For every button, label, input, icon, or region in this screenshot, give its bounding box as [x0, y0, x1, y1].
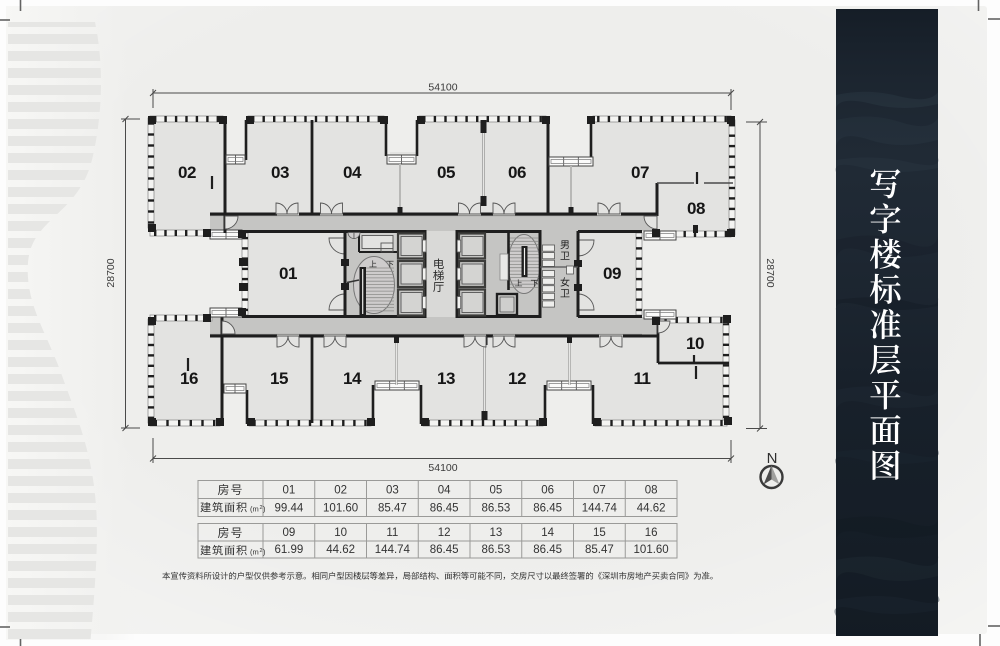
- svg-text:N: N: [767, 450, 778, 467]
- svg-text:14: 14: [541, 527, 554, 539]
- svg-text:86.53: 86.53: [481, 503, 510, 515]
- svg-text:10: 10: [334, 527, 347, 539]
- svg-text:101.60: 101.60: [634, 544, 669, 556]
- svg-text:04: 04: [343, 163, 362, 182]
- svg-text:44.62: 44.62: [326, 544, 355, 556]
- svg-text:01: 01: [282, 485, 295, 497]
- svg-text:06: 06: [541, 485, 554, 497]
- svg-text:09: 09: [282, 527, 295, 539]
- svg-text:05: 05: [489, 485, 502, 497]
- svg-text:(m: (m: [250, 548, 259, 557]
- svg-text:86.45: 86.45: [533, 503, 562, 515]
- svg-text:86.45: 86.45: [533, 544, 562, 556]
- svg-text:07: 07: [593, 485, 606, 497]
- svg-text:08: 08: [687, 199, 705, 218]
- svg-text:144.74: 144.74: [375, 544, 411, 556]
- svg-text:54100: 54100: [428, 82, 457, 94]
- svg-text:86.45: 86.45: [430, 503, 459, 515]
- svg-text:13: 13: [489, 527, 502, 539]
- svg-text:16: 16: [180, 369, 198, 388]
- svg-text:11: 11: [386, 527, 398, 539]
- svg-text:02: 02: [178, 163, 196, 182]
- svg-text:86.53: 86.53: [481, 544, 510, 556]
- svg-text:12: 12: [508, 369, 526, 388]
- svg-text:03: 03: [271, 163, 289, 182]
- svg-text:13: 13: [437, 369, 455, 388]
- svg-text:14: 14: [343, 369, 362, 388]
- svg-text:85.47: 85.47: [585, 544, 614, 556]
- svg-text:08: 08: [645, 485, 658, 497]
- svg-text:15: 15: [593, 527, 606, 539]
- svg-text:86.45: 86.45: [430, 544, 459, 556]
- svg-text:16: 16: [645, 527, 658, 539]
- svg-text:(m: (m: [250, 505, 259, 514]
- svg-text:28700: 28700: [105, 258, 117, 287]
- svg-text:44.62: 44.62: [637, 503, 666, 515]
- svg-text:12: 12: [438, 527, 451, 539]
- svg-text:15: 15: [270, 369, 288, 388]
- svg-text:06: 06: [508, 163, 526, 182]
- svg-text:28700: 28700: [764, 258, 776, 287]
- svg-text:101.60: 101.60: [323, 503, 358, 515]
- svg-text:02: 02: [334, 485, 347, 497]
- svg-text:85.47: 85.47: [378, 503, 407, 515]
- svg-text:01: 01: [279, 264, 297, 283]
- svg-text:07: 07: [631, 163, 649, 182]
- svg-text:03: 03: [386, 485, 399, 497]
- svg-text:54100: 54100: [428, 462, 457, 474]
- svg-text:61.99: 61.99: [274, 544, 303, 556]
- svg-text:99.44: 99.44: [274, 503, 303, 515]
- svg-text:11: 11: [634, 369, 651, 388]
- svg-text:144.74: 144.74: [582, 503, 618, 515]
- svg-text:09: 09: [603, 264, 621, 283]
- svg-text:05: 05: [437, 163, 455, 182]
- svg-text:04: 04: [438, 485, 451, 497]
- svg-text:10: 10: [686, 334, 704, 353]
